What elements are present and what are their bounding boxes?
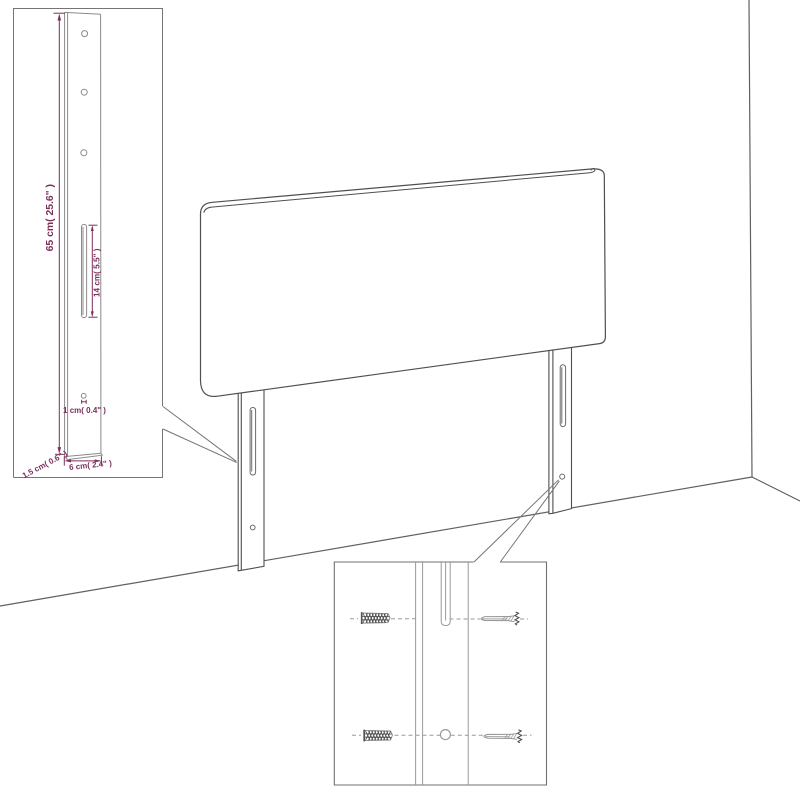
svg-text:1 cm( 0.4" ): 1 cm( 0.4" ) [63, 406, 106, 415]
svg-text:1.5 cm( 0.6" ): 1.5 cm( 0.6" ) [21, 449, 69, 480]
svg-text:65 cm( 25.6" ): 65 cm( 25.6" ) [45, 184, 56, 251]
svg-text:14 cm( 5.5" ): 14 cm( 5.5" ) [93, 248, 102, 297]
